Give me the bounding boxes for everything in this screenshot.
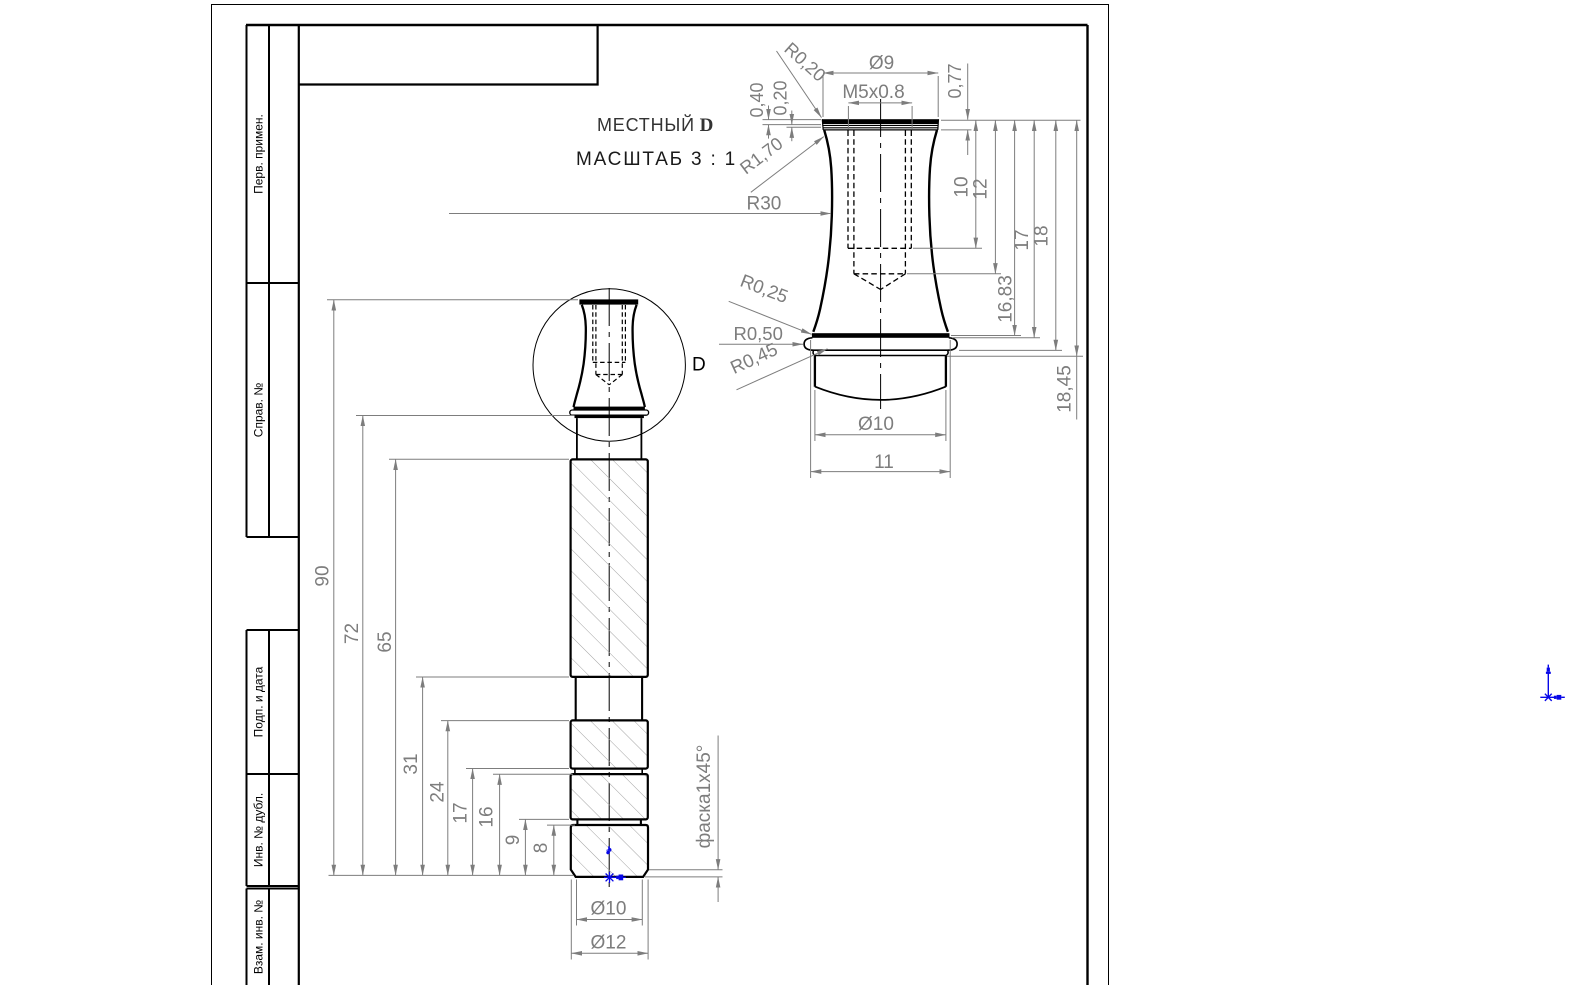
svg-text:Ø10: Ø10 bbox=[858, 414, 894, 435]
svg-text:Справ. №: Справ. № bbox=[252, 383, 266, 438]
svg-text:16: 16 bbox=[477, 806, 498, 827]
svg-text:Инв. № дубл.: Инв. № дубл. bbox=[252, 793, 266, 867]
svg-text:18,45: 18,45 bbox=[1054, 365, 1075, 413]
svg-text:R0,50: R0,50 bbox=[734, 323, 783, 344]
svg-text:Взам. инв. №: Взам. инв. № bbox=[252, 900, 266, 974]
svg-text:0,77: 0,77 bbox=[945, 63, 965, 98]
svg-text:11: 11 bbox=[874, 452, 894, 473]
svg-text:Подп. и дата: Подп. и дата bbox=[252, 666, 266, 737]
svg-text:65: 65 bbox=[375, 631, 396, 652]
svg-text:R30: R30 bbox=[747, 194, 782, 215]
svg-text:10: 10 bbox=[951, 176, 972, 197]
svg-text:17: 17 bbox=[451, 802, 472, 823]
svg-text:72: 72 bbox=[342, 623, 363, 644]
svg-text:МЕСТНЫЙ D: МЕСТНЫЙ D bbox=[597, 114, 713, 136]
svg-text:Ø9: Ø9 bbox=[869, 53, 894, 74]
svg-text:9: 9 bbox=[503, 835, 524, 846]
svg-text:МАСШТАБ 3 : 1: МАСШТАБ 3 : 1 bbox=[576, 149, 737, 170]
svg-text:0,20: 0,20 bbox=[770, 80, 790, 115]
svg-text:M5x0.8: M5x0.8 bbox=[842, 82, 904, 103]
svg-text:Перв. примен.: Перв. примен. bbox=[252, 114, 266, 194]
svg-text:фаска1х45°: фаска1х45° bbox=[694, 745, 715, 849]
svg-text:Ø12: Ø12 bbox=[591, 933, 627, 954]
svg-text:16,83: 16,83 bbox=[995, 275, 1016, 323]
svg-text:17: 17 bbox=[1012, 229, 1033, 250]
svg-text:D: D bbox=[692, 355, 706, 376]
svg-text:90: 90 bbox=[313, 565, 334, 586]
svg-text:24: 24 bbox=[428, 781, 449, 803]
svg-text:Ø10: Ø10 bbox=[591, 899, 627, 920]
svg-text:8: 8 bbox=[531, 843, 552, 854]
svg-text:18: 18 bbox=[1031, 225, 1052, 246]
svg-text:0,40: 0,40 bbox=[747, 82, 767, 117]
svg-text:12: 12 bbox=[971, 178, 992, 199]
svg-text:31: 31 bbox=[401, 753, 422, 774]
